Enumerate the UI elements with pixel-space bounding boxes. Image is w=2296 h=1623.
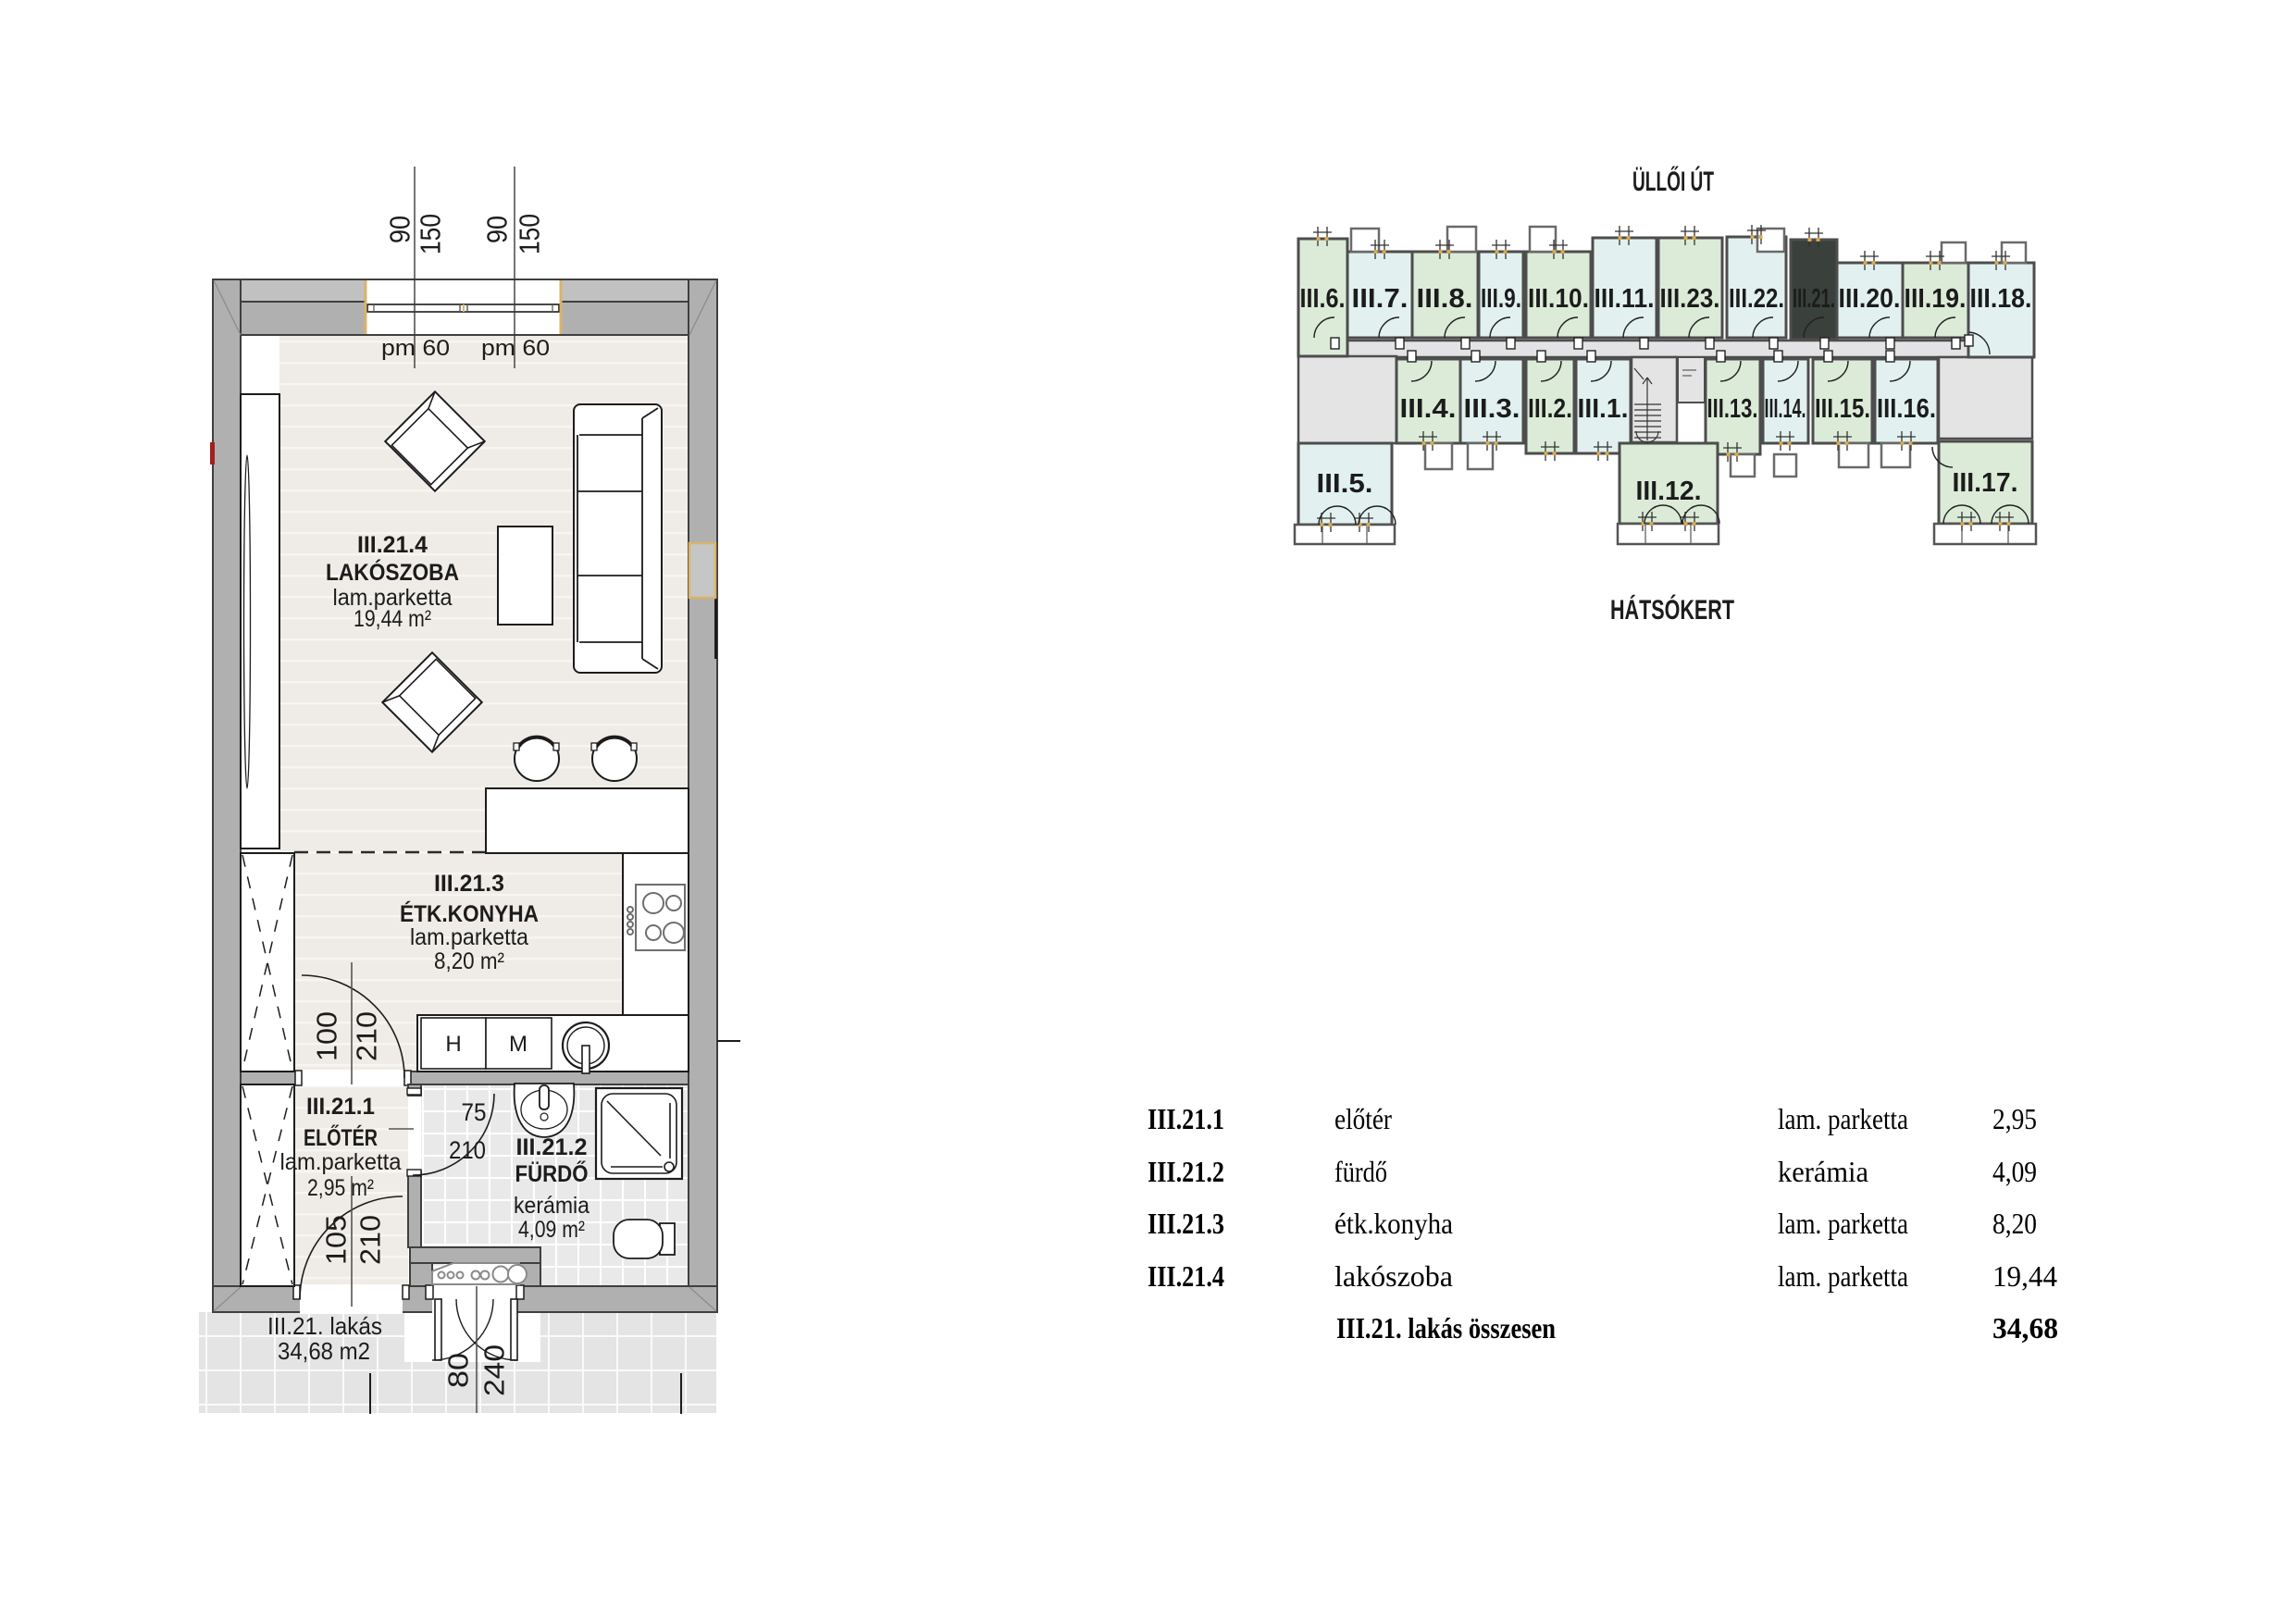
svg-text:III.21.2: III.21.2 <box>516 1134 588 1160</box>
svg-text:III.16.: III.16. <box>1877 394 1936 424</box>
svg-text:100: 100 <box>311 1011 343 1061</box>
svg-text:LAKÓSZOBA: LAKÓSZOBA <box>326 558 459 586</box>
svg-text:III.21.3: III.21.3 <box>1148 1207 1224 1240</box>
svg-text:lakószoba: lakószoba <box>1334 1259 1453 1293</box>
svg-text:H: H <box>445 1032 461 1057</box>
svg-text:III.17.: III.17. <box>1953 468 2018 498</box>
svg-text:34,68: 34,68 <box>1992 1311 2058 1344</box>
svg-text:III.15.: III.15. <box>1815 394 1870 424</box>
svg-text:III.19.: III.19. <box>1905 284 1967 314</box>
svg-text:ÜLLŐI ÚT: ÜLLŐI ÚT <box>1632 166 1714 197</box>
svg-text:III.2.: III.2. <box>1528 394 1572 424</box>
svg-text:III.21.3: III.21.3 <box>434 871 504 897</box>
svg-text:étk.konyha: étk.konyha <box>1334 1207 1453 1240</box>
svg-text:lam. parketta: lam. parketta <box>1778 1102 1908 1135</box>
svg-text:III.21.1: III.21.1 <box>1148 1102 1224 1135</box>
svg-text:240: 240 <box>478 1344 511 1396</box>
svg-text:III.11.: III.11. <box>1595 284 1655 314</box>
svg-text:2,95 m²: 2,95 m² <box>307 1175 374 1201</box>
svg-text:III.20.: III.20. <box>1839 284 1901 314</box>
svg-text:III.21. lakás: III.21. lakás <box>267 1312 382 1340</box>
svg-text:34,68 m2: 34,68 m2 <box>278 1337 370 1365</box>
svg-text:III.18.: III.18. <box>1970 284 2032 314</box>
svg-text:ÉTK.KONYHA: ÉTK.KONYHA <box>400 900 539 927</box>
svg-text:kerámia: kerámia <box>1778 1155 1868 1188</box>
svg-text:lam.parketta: lam.parketta <box>280 1149 402 1175</box>
svg-text:210: 210 <box>351 1011 383 1061</box>
svg-text:2,95: 2,95 <box>1992 1102 2037 1135</box>
svg-text:III.4.: III.4. <box>1400 394 1457 424</box>
svg-text:75: 75 <box>462 1098 487 1126</box>
svg-text:fürdő: fürdő <box>1334 1155 1387 1188</box>
svg-text:lam. parketta: lam. parketta <box>1778 1259 1908 1293</box>
svg-text:90: 90 <box>384 216 416 243</box>
svg-text:III.1.: III.1. <box>1578 394 1629 424</box>
svg-text:150: 150 <box>415 214 447 254</box>
svg-text:8,20: 8,20 <box>1992 1207 2037 1240</box>
svg-text:FÜRDŐ: FÜRDŐ <box>515 1160 589 1187</box>
svg-text:III.3.: III.3. <box>1464 394 1520 424</box>
svg-text:III.9.: III.9. <box>1481 284 1521 314</box>
svg-text:150: 150 <box>514 214 546 254</box>
svg-text:lam. parketta: lam. parketta <box>1778 1207 1908 1240</box>
svg-text:III.22.: III.22. <box>1729 284 1784 314</box>
svg-text:kerámia: kerámia <box>514 1193 590 1219</box>
svg-text:III.23.: III.23. <box>1660 284 1720 314</box>
svg-text:ELŐTÉR: ELŐTÉR <box>304 1124 378 1151</box>
svg-text:III.7.: III.7. <box>1352 284 1409 314</box>
svg-text:8,20 m²: 8,20 m² <box>434 948 504 974</box>
svg-text:4,09: 4,09 <box>1992 1155 2037 1188</box>
svg-text:III.14.: III.14. <box>1765 394 1806 424</box>
svg-text:III.10.: III.10. <box>1528 284 1589 314</box>
svg-text:III.21.4: III.21.4 <box>357 532 428 558</box>
svg-text:III.21.2: III.21.2 <box>1148 1155 1224 1188</box>
svg-text:III.5.: III.5. <box>1317 469 1373 499</box>
svg-text:III.13.: III.13. <box>1707 394 1758 424</box>
svg-text:lam.parketta: lam.parketta <box>410 924 528 950</box>
svg-text:HÁTSÓKERT: HÁTSÓKERT <box>1610 594 1734 626</box>
svg-text:M: M <box>509 1032 527 1057</box>
svg-text:III.21.4: III.21.4 <box>1148 1259 1224 1293</box>
svg-text:III.21.: III.21. <box>1793 284 1835 314</box>
svg-text:pm 60: pm 60 <box>481 336 550 361</box>
svg-text:III.12.: III.12. <box>1636 477 1702 506</box>
svg-text:80: 80 <box>442 1353 475 1388</box>
svg-text:pm 60: pm 60 <box>381 336 450 361</box>
svg-text:III.21.1: III.21.1 <box>306 1094 375 1120</box>
svg-text:III.21. lakás összesen: III.21. lakás összesen <box>1336 1311 1556 1344</box>
svg-text:19,44 m²: 19,44 m² <box>354 606 431 632</box>
svg-text:előtér: előtér <box>1334 1102 1392 1135</box>
svg-text:90: 90 <box>481 216 514 243</box>
svg-text:210: 210 <box>449 1136 486 1164</box>
svg-text:105: 105 <box>320 1215 353 1265</box>
svg-text:III.8.: III.8. <box>1417 284 1473 314</box>
svg-text:19,44: 19,44 <box>1992 1259 2057 1293</box>
svg-text:4,09 m²: 4,09 m² <box>518 1217 585 1243</box>
svg-text:210: 210 <box>354 1215 387 1265</box>
svg-text:III.6.: III.6. <box>1300 284 1346 314</box>
